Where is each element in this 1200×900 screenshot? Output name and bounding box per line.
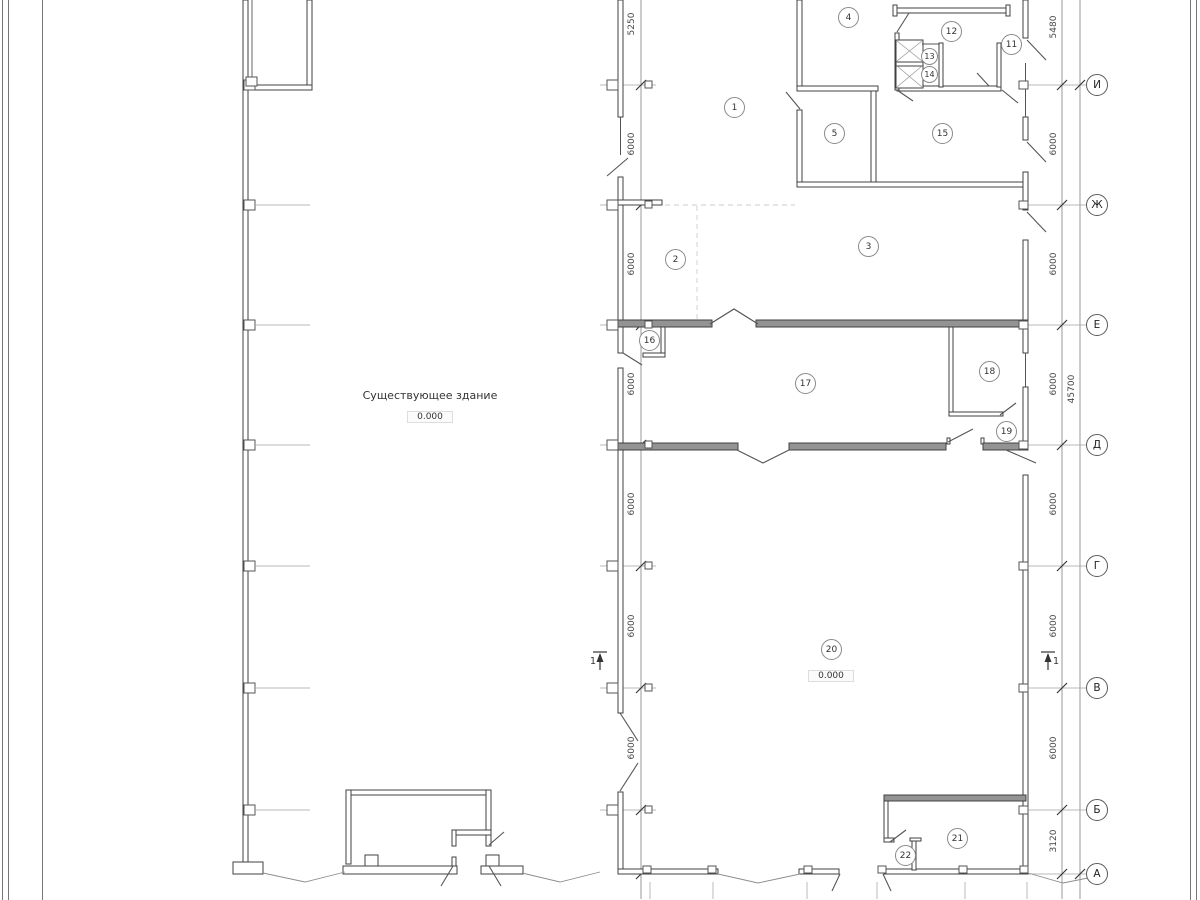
room-number: 16 bbox=[644, 336, 655, 346]
axis-circle-g: Г bbox=[1086, 555, 1108, 577]
axis-letter: Е bbox=[1094, 319, 1101, 331]
section-label-left: 1 bbox=[582, 656, 596, 667]
dim-label: 5480 bbox=[1049, 7, 1059, 47]
room-circle-5: 5 bbox=[824, 123, 845, 144]
room-number: 14 bbox=[924, 70, 934, 79]
dim-label: 6000 bbox=[1049, 606, 1059, 646]
dim-label: 6000 bbox=[627, 244, 637, 284]
room-number: 2 bbox=[673, 255, 679, 265]
room-number: 5 bbox=[832, 129, 838, 139]
room-circle-3: 3 bbox=[858, 236, 879, 257]
dim-label: 3120 bbox=[1049, 821, 1059, 861]
gate-chevrons bbox=[710, 309, 789, 463]
room-number: 3 bbox=[866, 242, 872, 252]
axis-leader-lines bbox=[256, 85, 1086, 874]
axis-letter: Ж bbox=[1091, 199, 1102, 211]
room-number: 21 bbox=[952, 834, 963, 844]
room-circle-22: 22 bbox=[895, 845, 916, 866]
dim-label: 6000 bbox=[1049, 244, 1059, 284]
room-circle-19: 19 bbox=[996, 421, 1017, 442]
section-label-right: 1 bbox=[1053, 656, 1067, 667]
dim-label: 6000 bbox=[1049, 484, 1059, 524]
floor-plan-sheet: 1 2 3 4 5 11 12 13 14 15 16 17 18 19 20 … bbox=[0, 0, 1200, 900]
window-lines bbox=[621, 44, 1026, 387]
existing-building-label: Существующее здание bbox=[345, 389, 515, 402]
room-circle-18: 18 bbox=[979, 361, 1000, 382]
room-number: 1 bbox=[732, 103, 738, 113]
room-number: 13 bbox=[924, 52, 934, 61]
dim-label: 6000 bbox=[627, 124, 637, 164]
room-circle-21: 21 bbox=[947, 828, 968, 849]
dim-label: 6000 bbox=[627, 484, 637, 524]
dimension-ticks bbox=[636, 80, 1085, 879]
dim-label: 6000 bbox=[1049, 124, 1059, 164]
room-number: 12 bbox=[946, 27, 957, 37]
room-circle-11: 11 bbox=[1001, 34, 1022, 55]
dim-label: 6000 bbox=[1049, 728, 1059, 768]
room-number: 11 bbox=[1006, 40, 1017, 50]
axis-circle-i: И bbox=[1086, 74, 1108, 96]
axis-circle-e: Е bbox=[1086, 314, 1108, 336]
plan-linework-layer bbox=[0, 0, 1200, 900]
room-circle-17: 17 bbox=[795, 373, 816, 394]
dim-label-total: 45700 bbox=[1067, 365, 1077, 413]
axis-circle-b: Б bbox=[1086, 799, 1108, 821]
room-circle-4: 4 bbox=[838, 7, 859, 28]
room-circle-16: 16 bbox=[639, 330, 660, 351]
room-number: 17 bbox=[800, 379, 811, 389]
room-circle-14: 14 bbox=[921, 66, 938, 83]
dim-label: 5250 bbox=[627, 4, 637, 44]
axis-circle-a: А bbox=[1086, 863, 1108, 885]
room-circle-1: 1 bbox=[724, 97, 745, 118]
door-swings bbox=[441, 13, 1046, 891]
grid-extension-stubs bbox=[650, 882, 1027, 899]
axis-letter: Д bbox=[1093, 439, 1101, 451]
axis-letter: В bbox=[1093, 682, 1100, 694]
axis-letter: Б bbox=[1093, 804, 1100, 816]
room-circle-2: 2 bbox=[665, 249, 686, 270]
elevation-mark-room20: 0.000 bbox=[808, 670, 854, 682]
dim-label: 6000 bbox=[627, 728, 637, 768]
room-circle-15: 15 bbox=[932, 123, 953, 144]
dim-label: 6000 bbox=[627, 364, 637, 404]
axis-letter: А bbox=[1093, 868, 1100, 880]
room-number: 15 bbox=[937, 129, 948, 139]
room-circle-13: 13 bbox=[921, 48, 938, 65]
axis-letter: И bbox=[1093, 79, 1101, 91]
dim-label: 6000 bbox=[627, 606, 637, 646]
room-number: 4 bbox=[846, 13, 852, 23]
axis-circle-v: В bbox=[1086, 677, 1108, 699]
room-number: 18 bbox=[984, 367, 995, 377]
axis-circle-d: Д bbox=[1086, 434, 1108, 456]
room-number: 19 bbox=[1001, 427, 1012, 437]
room-number: 22 bbox=[900, 851, 911, 861]
room-circle-12: 12 bbox=[941, 21, 962, 42]
dim-label: 6000 bbox=[1049, 364, 1059, 404]
axis-letter: Г bbox=[1094, 560, 1100, 572]
axis-circle-zh: Ж bbox=[1086, 194, 1108, 216]
elevation-mark-existing: 0.000 bbox=[407, 411, 453, 423]
room-number: 20 bbox=[826, 645, 837, 655]
room-circle-20: 20 bbox=[821, 639, 842, 660]
